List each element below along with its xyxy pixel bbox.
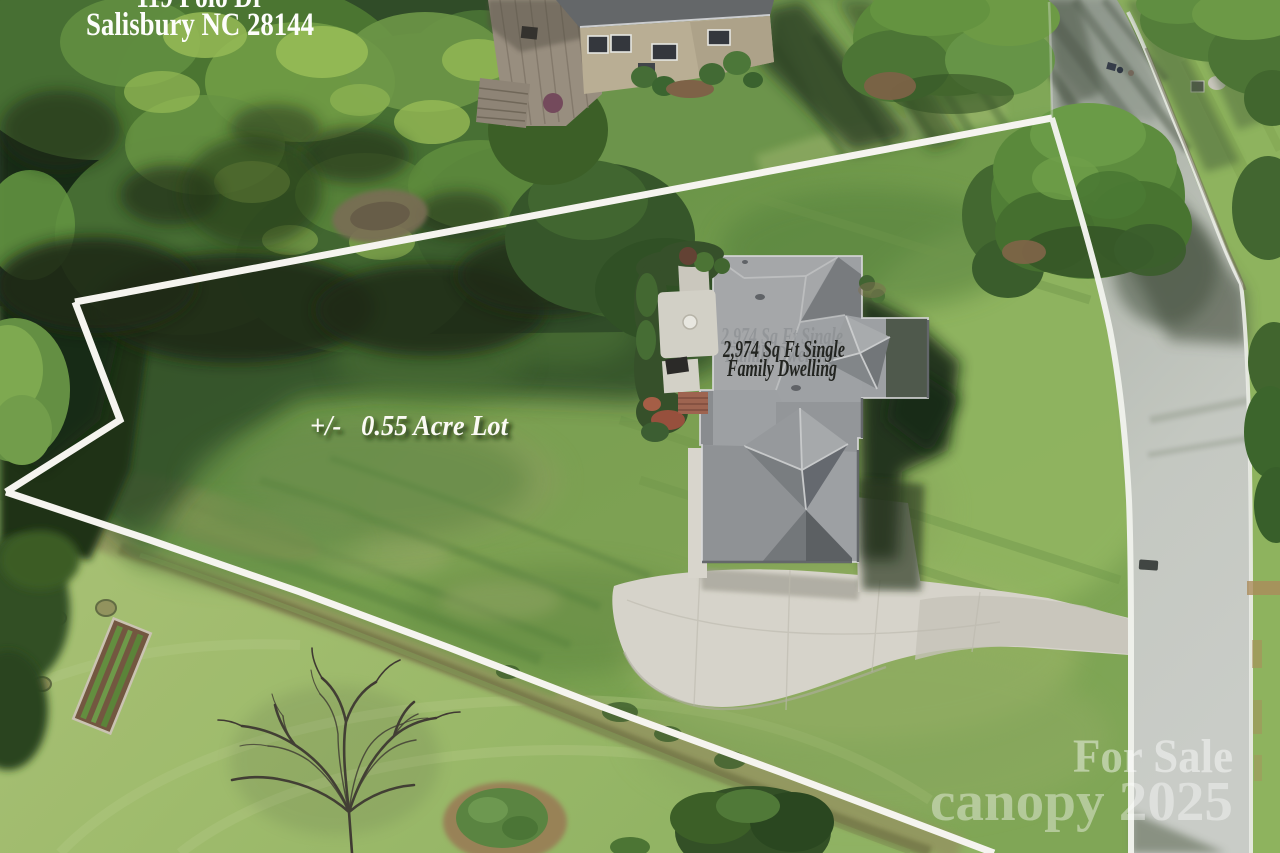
svg-text:Salisbury NC 28144: Salisbury NC 28144 (86, 7, 314, 43)
svg-text:+/- 0.55 Acre Lot: +/- 0.55 Acre Lot (310, 410, 509, 442)
svg-text:canopy 2025: canopy 2025 (930, 771, 1233, 833)
svg-text:Family Dwelling: Family Dwelling (726, 356, 837, 382)
